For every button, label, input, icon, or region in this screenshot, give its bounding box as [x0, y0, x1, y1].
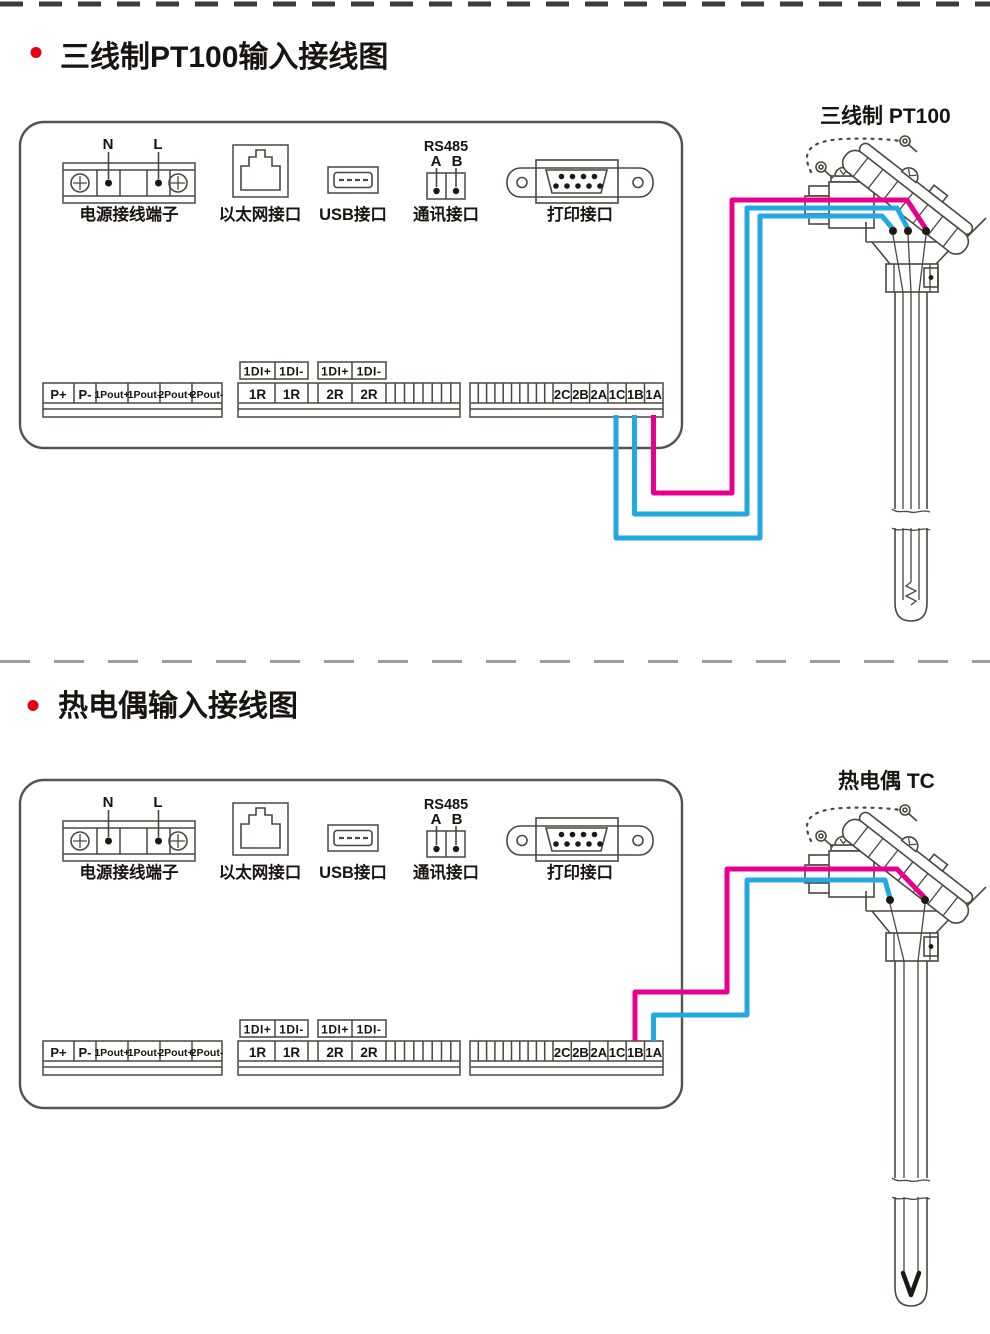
pin-b-label: B — [452, 811, 463, 828]
usb-port-label: USB接口 — [319, 204, 387, 224]
terminal-cell: 2Pout- — [191, 1047, 224, 1059]
terminal-cell: 1A — [645, 387, 662, 402]
terminal-cell: 1DI- — [357, 1023, 382, 1037]
probe-break — [892, 1178, 930, 1199]
terminal-n-label: N — [103, 794, 114, 811]
section-title: 三线制PT100输入接线图 — [60, 41, 388, 74]
section-title: 热电偶输入接线图 — [58, 690, 298, 723]
printer-port-label: 打印接口 — [547, 862, 613, 882]
terminal-cell: 1Pout- — [128, 1047, 161, 1059]
terminal-cell: 1A — [645, 1045, 662, 1060]
wiring-pt100 — [616, 200, 930, 538]
wire-1b — [635, 208, 909, 514]
terminal-cell: 1DI+ — [244, 365, 272, 379]
sensor-head-icon — [805, 131, 986, 292]
terminal-cell: 1Pout+ — [94, 1047, 129, 1059]
pin-b-label: B — [452, 153, 463, 170]
panel-ports-art — [43, 803, 663, 1075]
terminal-cell: 1Pout- — [128, 389, 161, 401]
terminal-cell: 2B — [572, 387, 589, 402]
sensor-terminal-dot — [904, 227, 912, 235]
usb-port-label: USB接口 — [319, 862, 387, 882]
pt100-sensor — [805, 131, 986, 621]
terminal-cell: 2Pout+ — [158, 389, 193, 401]
sensor-caption: 热电偶 TC — [838, 769, 935, 793]
pin-a-label: A — [431, 153, 442, 170]
terminal-cell: 2R — [326, 387, 344, 402]
terminal-cell: P+ — [50, 1045, 67, 1060]
probe-icon — [892, 961, 930, 1306]
terminal-cell: 1B — [627, 1045, 644, 1060]
sensor-terminal-dot — [921, 896, 929, 904]
wire-1c — [616, 216, 893, 538]
terminal-cell: 2Pout- — [191, 389, 224, 401]
comm-port-label: 通讯接口 — [413, 204, 479, 224]
sensor-terminal-dot — [922, 227, 930, 235]
wiring-diagram-page: 三线制PT100输入接线图 三线制 PT100 N L 电源接线端子 以太网接口… — [0, 0, 990, 1334]
terminal-cell: 1DI+ — [244, 1023, 272, 1037]
terminal-cell: 1R — [283, 1045, 301, 1060]
ethernet-port-label: 以太网接口 — [219, 204, 302, 224]
wiring-tc — [635, 869, 929, 1041]
terminal-cell: 1R — [283, 387, 301, 402]
wire-1a — [654, 200, 927, 493]
sensor-caption: 三线制 PT100 — [820, 104, 951, 128]
tc-sensor — [805, 800, 986, 1306]
terminal-cell: 2R — [326, 1045, 344, 1060]
terminal-cell: 1DI- — [279, 1023, 304, 1037]
terminal-cell: 1DI- — [357, 365, 382, 379]
terminal-cell: 2Pout+ — [158, 1047, 193, 1059]
terminal-cell: 1R — [249, 387, 267, 402]
terminal-cell: 1R — [249, 1045, 267, 1060]
panel-ports-art — [43, 145, 663, 417]
terminal-cell: 1C — [609, 387, 626, 402]
terminal-l-label: L — [153, 794, 162, 811]
terminal-cell: 2A — [590, 387, 607, 402]
diagram-canvas: 三线制PT100输入接线图 三线制 PT100 N L 电源接线端子 以太网接口… — [0, 0, 990, 1334]
power-port-label: 电源接线端子 — [80, 204, 180, 224]
ethernet-port-label: 以太网接口 — [219, 862, 302, 882]
wire-1a — [654, 880, 891, 1041]
terminal-cell: 2R — [360, 387, 378, 402]
rtd-resistor-icon — [906, 582, 916, 605]
bullet-icon — [28, 700, 39, 711]
probe-break — [892, 509, 930, 530]
section-tc: 热电偶输入接线图 热电偶 TC N L 电源接线端子 以太网接口 USB接口 R… — [20, 690, 986, 1306]
terminal-cell: P+ — [50, 387, 67, 402]
probe-icon — [892, 292, 930, 621]
terminal-cell: P- — [79, 1045, 92, 1060]
terminal-cell: 1DI- — [279, 365, 304, 379]
comm-port-label: 通讯接口 — [413, 862, 479, 882]
terminal-l-label: L — [153, 136, 162, 153]
terminal-cell: 1Pout+ — [94, 389, 129, 401]
recorder-panel: N L 电源接线端子 以太网接口 USB接口 RS485 A B 通讯接口 打印… — [20, 122, 682, 448]
sensor-terminal-dot — [889, 227, 897, 235]
recorder-panel: N L 电源接线端子 以太网接口 USB接口 RS485 A B 通讯接口 打印… — [20, 780, 682, 1108]
printer-port-label: 打印接口 — [547, 204, 613, 224]
sensor-terminal-dot — [886, 896, 894, 904]
terminal-cell: 2R — [360, 1045, 378, 1060]
bullet-icon — [31, 47, 42, 58]
terminal-cell: 1DI+ — [321, 1023, 349, 1037]
terminal-n-label: N — [103, 136, 114, 153]
tc-junction-icon — [903, 1273, 919, 1295]
terminal-cell: 2C — [554, 387, 571, 402]
terminal-cell: 2A — [590, 1045, 607, 1060]
terminal-cell: 2B — [572, 1045, 589, 1060]
terminal-cell: P- — [79, 387, 92, 402]
terminal-cell: 1DI+ — [321, 365, 349, 379]
terminal-cell: 1C — [609, 1045, 626, 1060]
terminal-cell: 1B — [627, 387, 644, 402]
pin-a-label: A — [431, 811, 442, 828]
section-pt100: 三线制PT100输入接线图 三线制 PT100 N L 电源接线端子 以太网接口… — [20, 41, 986, 621]
terminal-cell: 2C — [554, 1045, 571, 1060]
power-port-label: 电源接线端子 — [80, 862, 180, 882]
